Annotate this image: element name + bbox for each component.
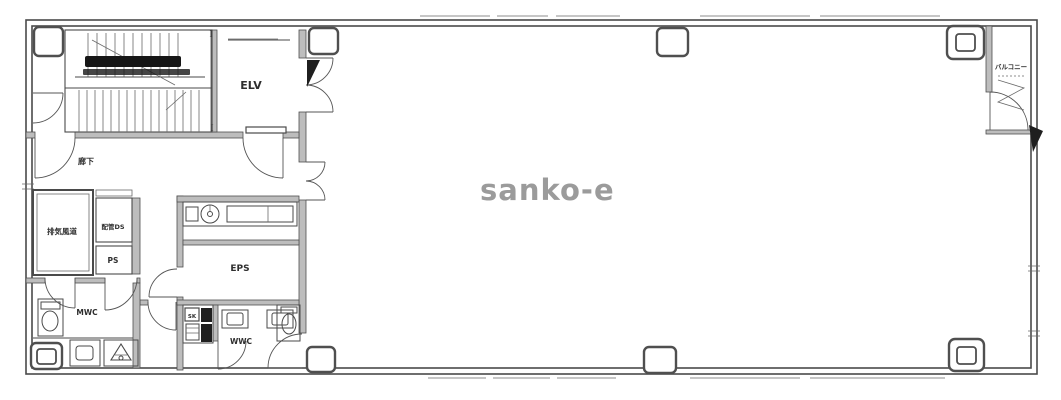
room-label-corridor: 廊下: [78, 156, 94, 166]
sink-box: [70, 340, 100, 366]
service-rooms: 排気風道 配管DS PS 廊下: [33, 156, 132, 275]
section-marker-bottom: I: [211, 123, 214, 133]
column-bottom-mid-2: [644, 347, 676, 373]
room-label-eps: EPS: [230, 264, 249, 274]
toilet-bowl-wwc: [282, 314, 296, 334]
door-swings: [35, 58, 1028, 369]
pipe-duct-room: [96, 198, 132, 242]
door-arc-wwc: [268, 334, 302, 368]
room-label-exhaust-duct: 排気風道: [47, 226, 77, 236]
column-bottom-mid-1: [307, 347, 335, 372]
room-label-elv: ELV: [240, 79, 262, 92]
floor-plan: ELV I I: [0, 0, 1061, 400]
entrance-double-door: [306, 58, 333, 112]
column-top-mid-1: [309, 28, 338, 54]
toilet-bowl: [42, 311, 58, 331]
watermark: sanko-e: [480, 173, 615, 207]
room-label-pipe-duct: 配管DS: [101, 222, 124, 231]
corridor-double-door: [306, 162, 325, 200]
sk-closet: SK: [183, 305, 213, 343]
column-bottom-right: [949, 339, 984, 371]
toilet-outline: [38, 299, 63, 336]
column-bottom-left: [31, 343, 62, 369]
room-label-mwc: MWC: [76, 308, 98, 317]
door-arc-balcony: [990, 92, 1028, 130]
slop-sink-triangle: [111, 344, 131, 360]
section-marker-top: I: [210, 29, 213, 39]
room-label-ps: PS: [108, 256, 119, 265]
door-arc-mwc-lobby: [105, 278, 137, 310]
door-arc-corridor-left: [35, 138, 75, 178]
column-top-right: [947, 26, 984, 59]
column-top-left: [34, 27, 63, 56]
floor-plan-drawing: ELV I I: [0, 0, 1061, 400]
door-leaf-dark: [307, 60, 320, 87]
door-arc-kitchenette: [149, 269, 177, 297]
elevator-door-recess: [246, 127, 286, 133]
balcony: バルコニー: [995, 63, 1043, 152]
room-label-wwc: WWC: [230, 337, 253, 346]
kitchenette: [183, 202, 297, 226]
room-label-sk: SK: [188, 314, 197, 320]
stair-illegible-text: [83, 56, 190, 75]
column-top-mid-2: [657, 28, 688, 56]
door-arc-elv-hall: [243, 138, 283, 178]
womens-wc: WWC: [222, 305, 300, 346]
balcony-hatch: [998, 80, 1024, 110]
room-label-balcony: バルコニー: [995, 63, 1027, 71]
door-arc-wwc-entry: [148, 302, 176, 330]
elevator-hall: ELV I I: [210, 29, 291, 133]
